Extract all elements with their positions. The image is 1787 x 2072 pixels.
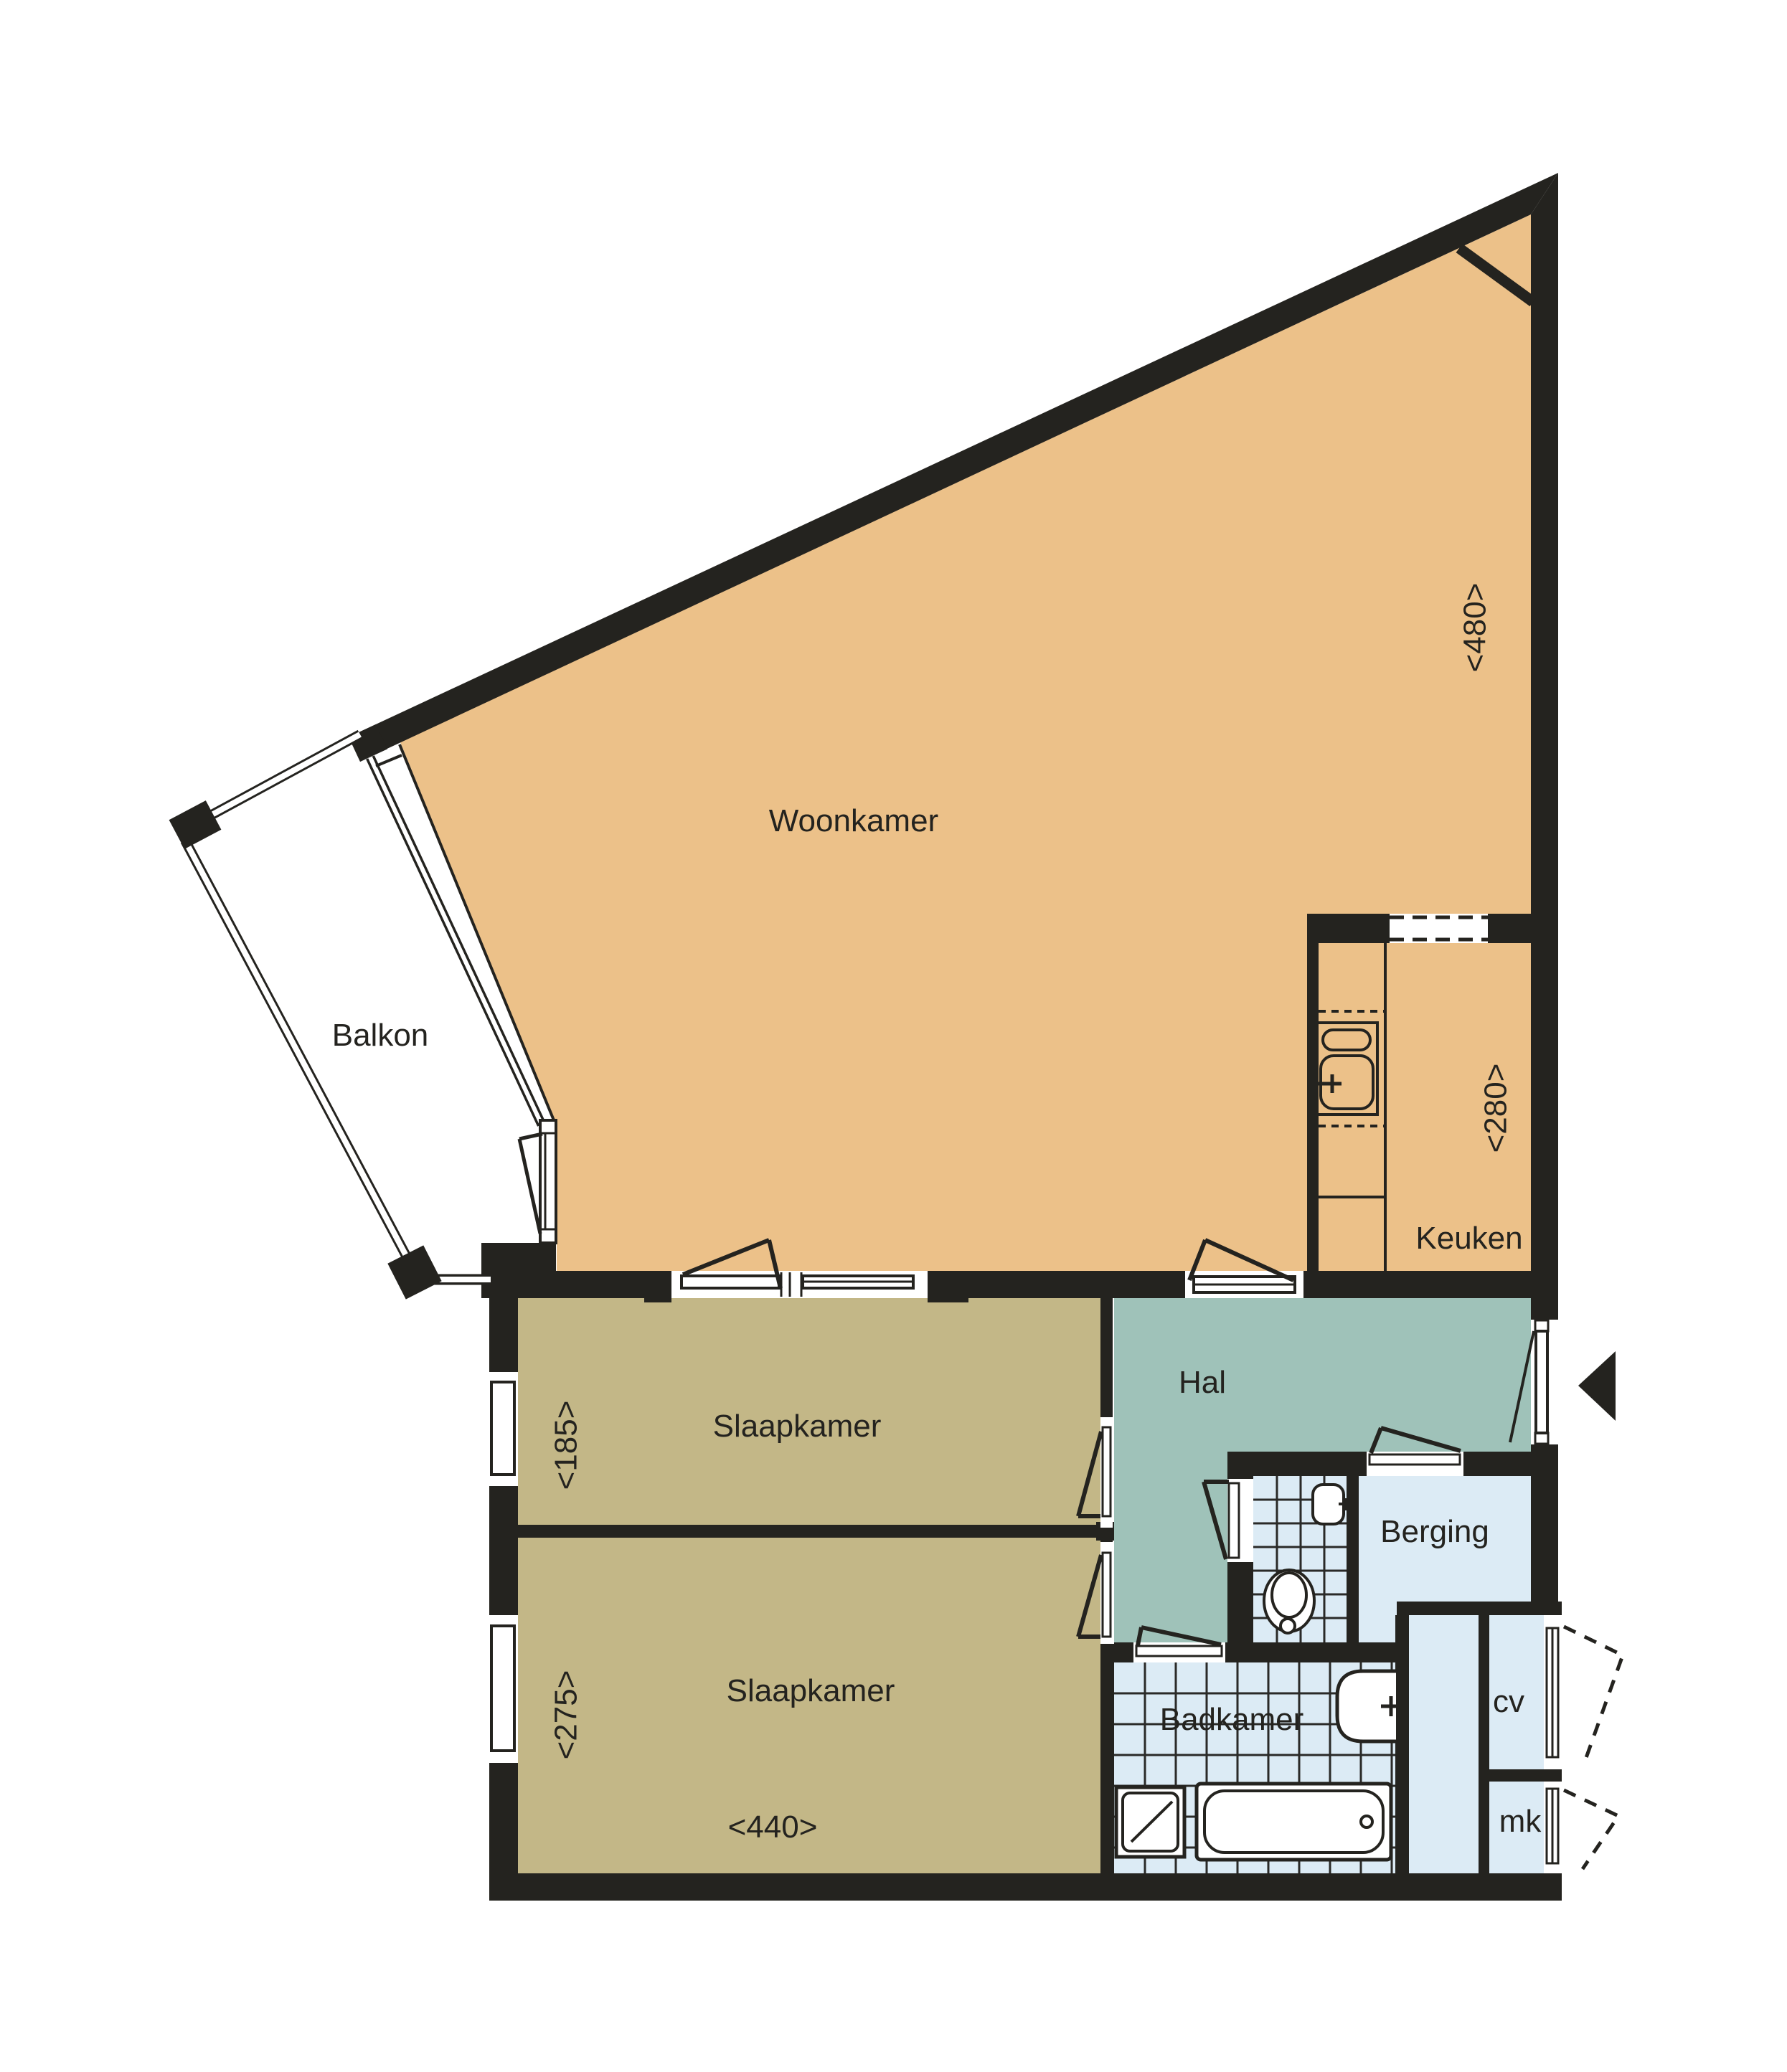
svg-text:<185>: <185>: [549, 1401, 584, 1490]
svg-text:Slaapkamer: Slaapkamer: [727, 1673, 895, 1708]
svg-text:mk: mk: [1499, 1804, 1542, 1839]
svg-text:cv: cv: [1493, 1684, 1524, 1719]
svg-text:Berging: Berging: [1380, 1514, 1489, 1549]
svg-text:<480>: <480>: [1458, 583, 1493, 673]
svg-text:<275>: <275>: [549, 1670, 584, 1760]
svg-text:Woonkamer: Woonkamer: [769, 803, 938, 838]
svg-text:Hal: Hal: [1179, 1365, 1226, 1400]
svg-text:<440>: <440>: [728, 1810, 818, 1845]
svg-text:Badkamer: Badkamer: [1160, 1702, 1304, 1737]
svg-text:Keuken: Keuken: [1415, 1221, 1522, 1256]
svg-text:Slaapkamer: Slaapkamer: [713, 1409, 882, 1444]
svg-text:Balkon: Balkon: [332, 1018, 429, 1053]
svg-text:<280>: <280>: [1479, 1064, 1514, 1153]
